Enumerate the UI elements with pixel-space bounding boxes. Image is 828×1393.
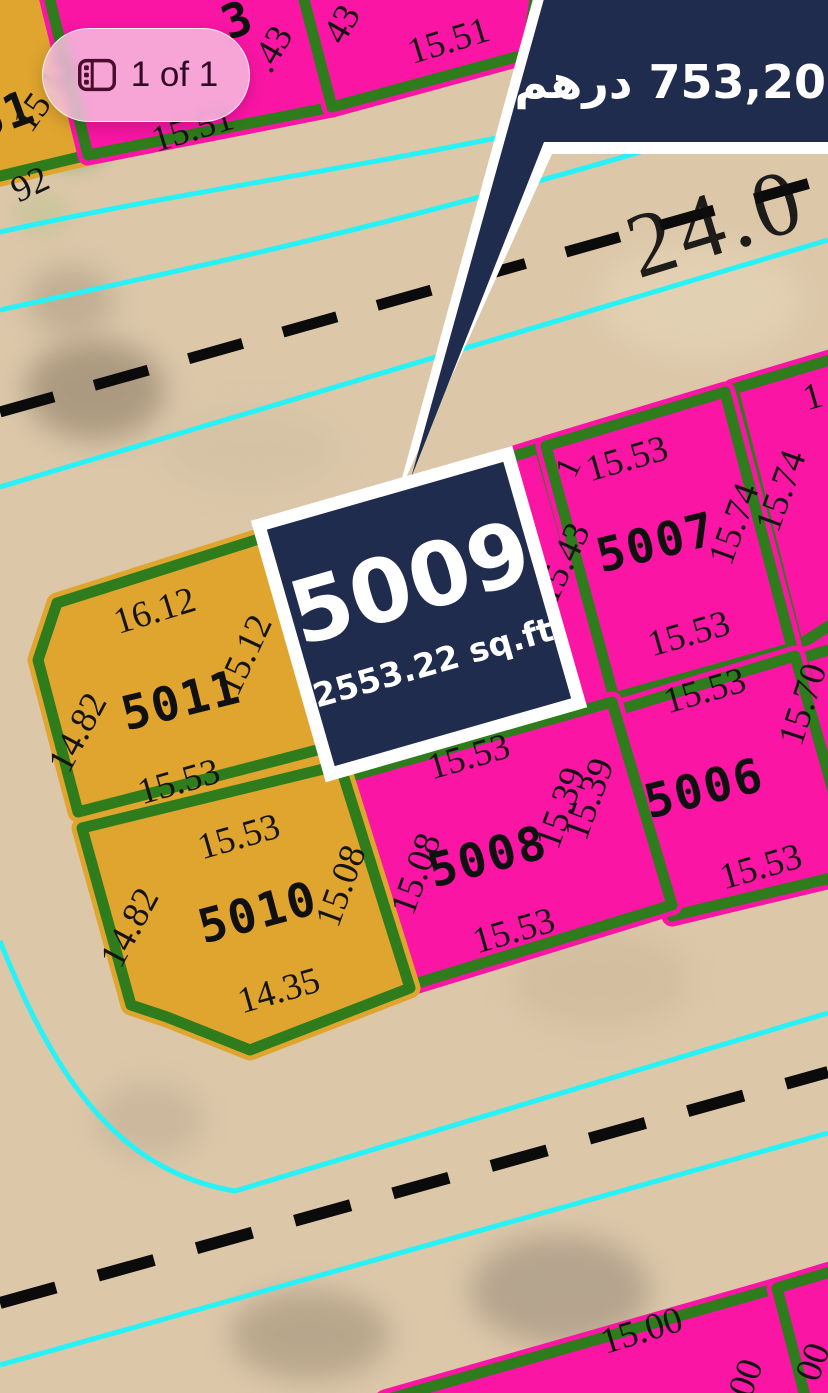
page-counter-icon xyxy=(74,52,120,98)
map-canvas[interactable]: 24.0 15.00 00 00 51 15.12 92 3 .43 15.51… xyxy=(0,0,828,1393)
pagination-badge-label: 1 of 1 xyxy=(131,55,219,95)
map-viewer: 24.0 15.00 00 00 51 15.12 92 3 .43 15.51… xyxy=(0,0,828,1393)
pagination-badge[interactable]: 1 of 1 xyxy=(42,28,250,122)
price-banner-text: 753,200 درهم xyxy=(514,55,828,109)
